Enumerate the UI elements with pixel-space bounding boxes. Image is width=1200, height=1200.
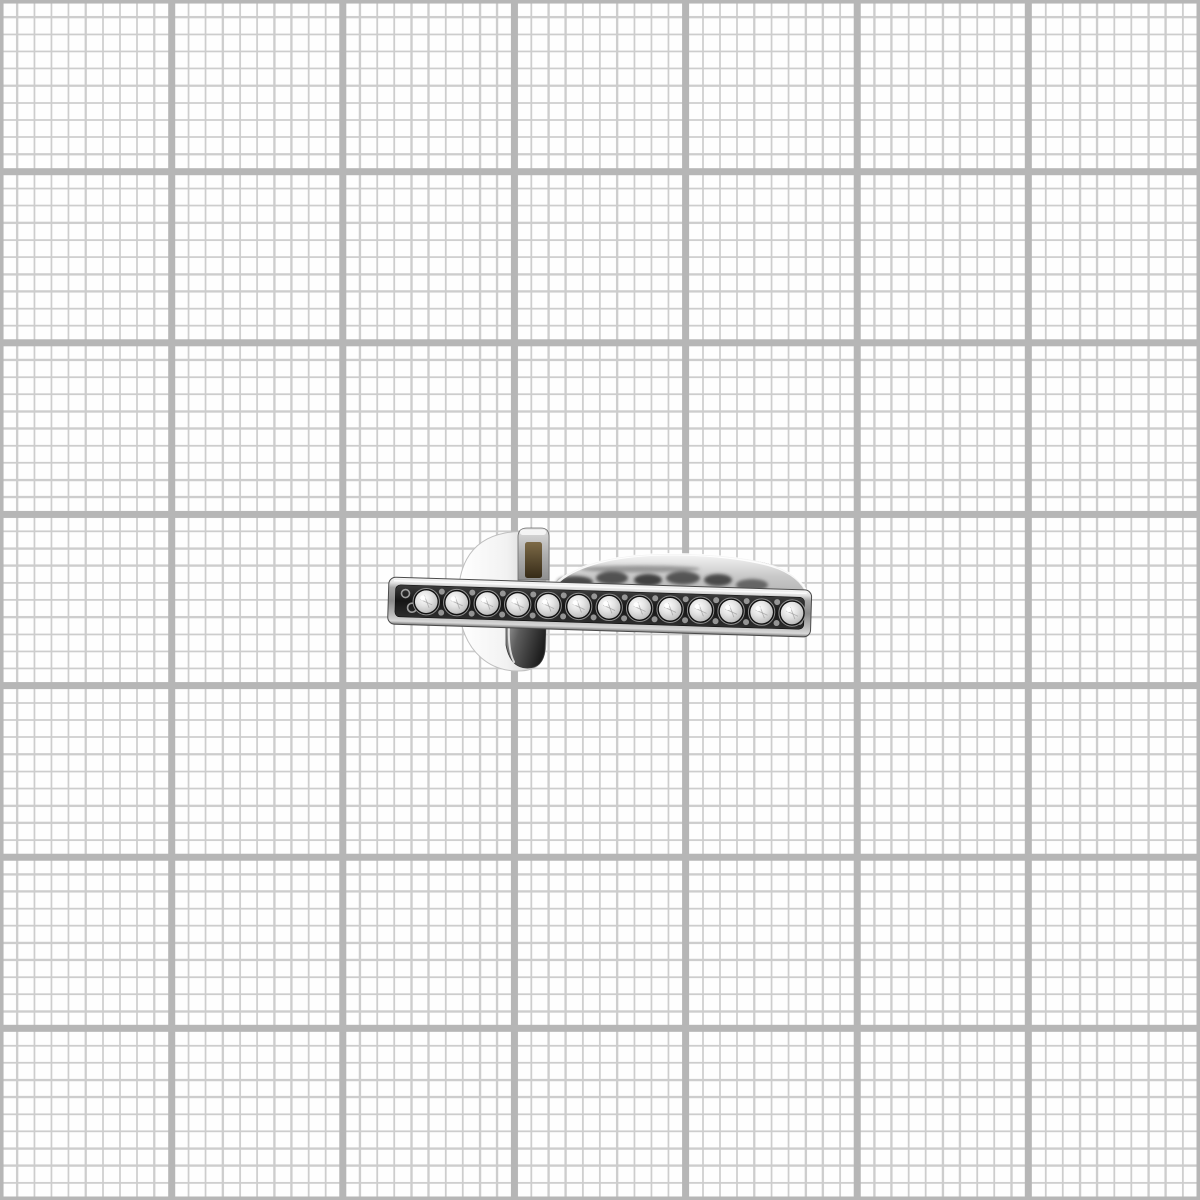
ring	[388, 528, 812, 671]
strap-top-highlight	[520, 530, 546, 536]
cross-strap	[518, 528, 549, 580]
strap-slot	[525, 542, 542, 578]
ring-photo	[0, 0, 1200, 1200]
